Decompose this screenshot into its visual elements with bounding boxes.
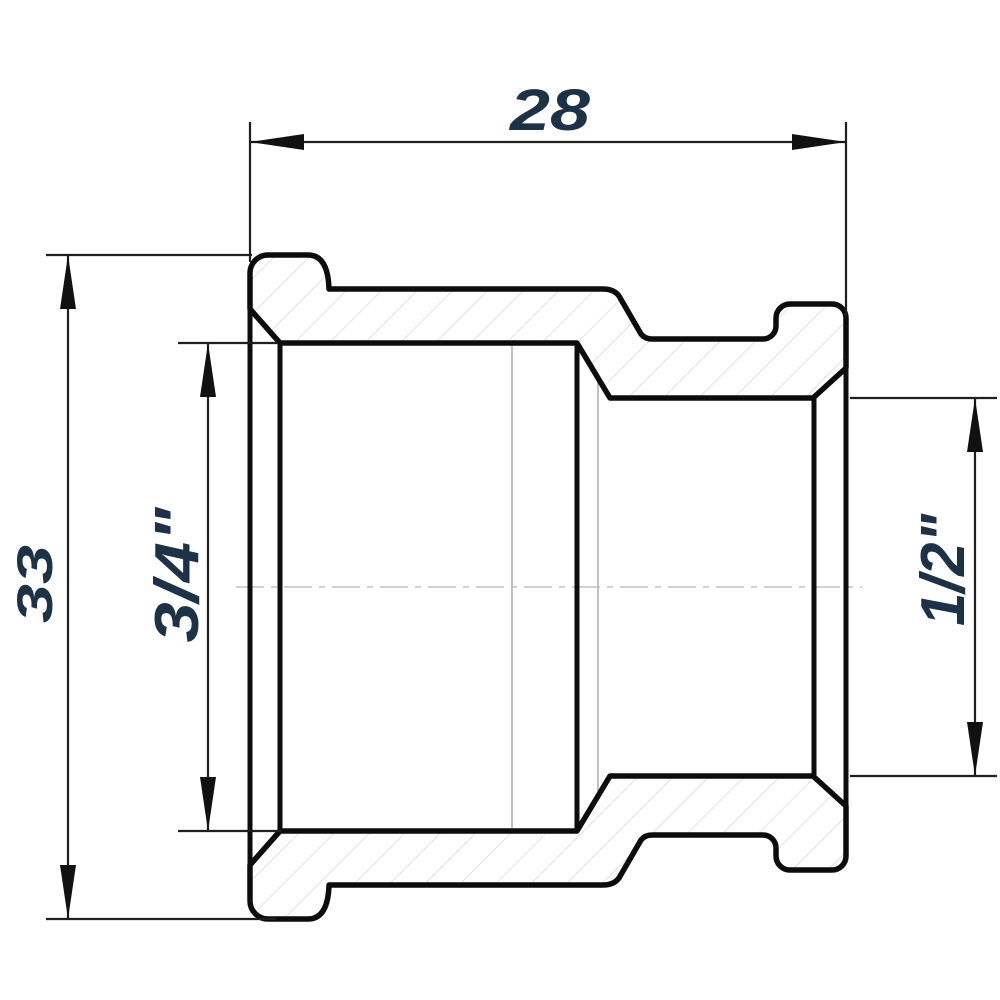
technical-drawing-page: 28 33 3/4" 1/2" <box>0 0 1000 1000</box>
height-dimension-label: 33 <box>7 545 63 623</box>
width-dimension-label: 28 <box>509 78 591 143</box>
reducing-socket-section-drawing: 28 33 3/4" 1/2" <box>0 0 1000 1000</box>
left-thread-dimension-label: 3/4" <box>143 506 212 643</box>
right-thread-dimension-label: 1/2" <box>909 512 978 626</box>
